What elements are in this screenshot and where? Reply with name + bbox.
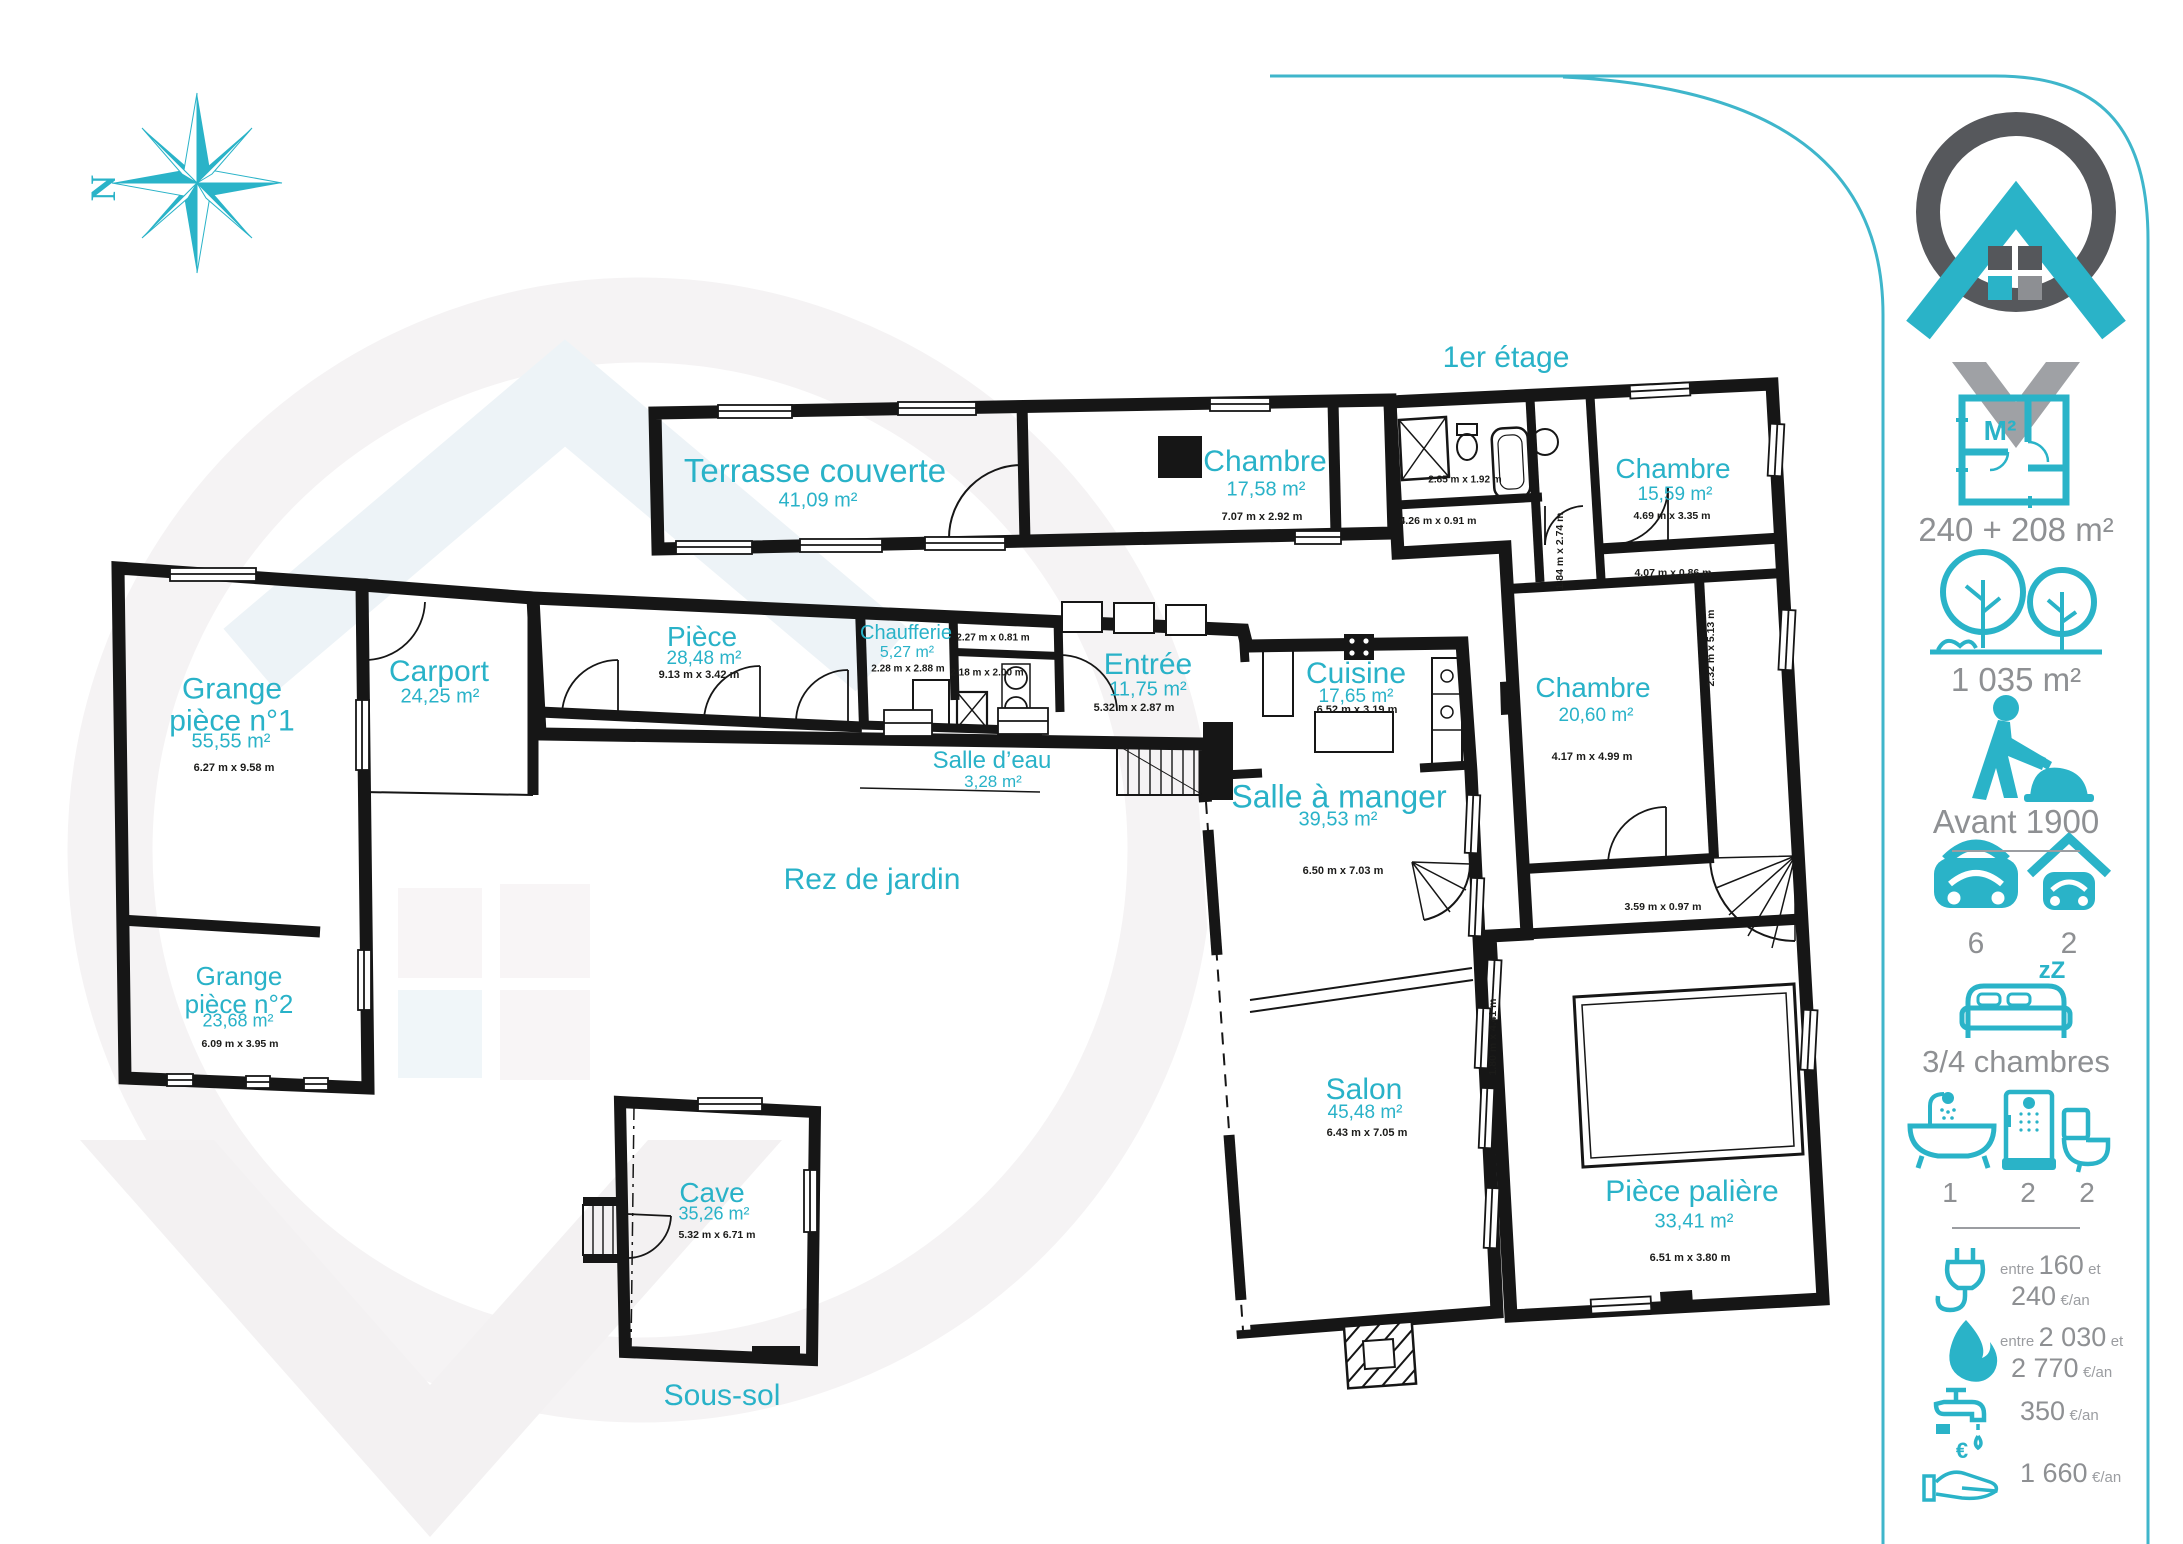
room-chambre3-area: 20,60 m² <box>1559 705 1634 727</box>
room-carport-area: 24,25 m² <box>401 686 480 709</box>
room-piece-dims: 9.13 m x 3.42 m <box>659 669 740 681</box>
room-carport-name: Carport <box>389 656 489 688</box>
room-piece-paliere-name: Pièce palière <box>1605 1176 1778 1208</box>
room-piece-area: 28,48 m² <box>667 648 742 670</box>
divider-2 <box>1952 1227 2080 1229</box>
surface-icon: M² <box>1956 398 2066 508</box>
measure-2: 1.84 m x 2.74 m <box>1554 512 1566 589</box>
water-cost: 350 €/an <box>2020 1396 2099 1427</box>
electricity-icon <box>1938 1248 1983 1310</box>
tax-cost: 1 660 €/an <box>2020 1458 2121 1489</box>
gas-cost: entre 2 030 et 2 770 €/an <box>2000 1322 2123 1384</box>
room-piece-paliere-area: 33,41 m² <box>1655 1211 1734 1234</box>
measure-7: 2.27 m x 0.81 m <box>956 633 1029 644</box>
room-salle-a-manger-area: 39,53 m² <box>1299 809 1378 832</box>
floor-plan-page: N <box>0 0 2183 1544</box>
measure-1: 4.26 m x 0.91 m <box>1399 515 1476 527</box>
room-entree-dims: 5.32 m x 2.87 m <box>1094 702 1175 714</box>
room-chambre3-name: Chambre <box>1535 673 1650 703</box>
room-salon-dims: 6.43 m x 7.05 m <box>1327 1127 1408 1139</box>
room-chaufferie-area: 5,27 m² <box>880 644 934 662</box>
measure-3: 4.07 m x 0.86 m <box>1634 567 1711 579</box>
room-chambre2-area: 15,59 m² <box>1638 484 1713 506</box>
svg-text:€: € <box>1956 1438 1968 1463</box>
first-floor-title: 1er étage <box>1443 341 1570 375</box>
room-salle-a-manger-dims: 6.50 m x 7.03 m <box>1303 865 1384 877</box>
land-icon <box>1930 552 2102 652</box>
land-value: 1 035 m² <box>1951 661 2081 699</box>
room-grange1-area: 55,55 m² <box>192 731 271 754</box>
tax-icon: € <box>1924 1438 1996 1500</box>
room-grange2-dims: 6.09 m x 3.95 m <box>201 1038 278 1050</box>
room-grange2-area: 23,68 m² <box>202 1011 273 1032</box>
bedrooms-icon: zZ <box>1962 957 2070 1038</box>
room-chaufferie-name: Chaufferie <box>860 623 952 645</box>
room-piece-paliere-dims: 6.51 m x 3.80 m <box>1650 1252 1731 1264</box>
room-salle-eau-area: 3,28 m² <box>964 772 1022 792</box>
room-chambre2-name: Chambre <box>1615 454 1730 484</box>
room-chambre1-area: 17,58 m² <box>1227 479 1306 502</box>
basement-title: Sous-sol <box>664 1379 781 1413</box>
room-cave-dims: 5.32 m x 6.71 m <box>678 1229 755 1241</box>
garage-icon <box>2030 838 2108 910</box>
room-grange1-name: Grange pièce n°1 <box>169 674 294 739</box>
plan-canvas: N <box>0 0 2183 1544</box>
measure-4: 2.32 m x 5.13 m <box>1705 609 1717 686</box>
room-salle-eau-name: Salle d’eau <box>933 748 1052 774</box>
shower-count: 2 <box>2020 1177 2036 1209</box>
wc-icon <box>2064 1110 2110 1172</box>
room-terrasse-name: Terrasse couverte <box>684 453 946 489</box>
room-chambre2-dims: 4.69 m x 3.35 m <box>1633 510 1710 522</box>
garage-count: 2 <box>2061 927 2078 961</box>
north-label: N <box>83 175 123 201</box>
surface-value: 240 + 208 m² <box>1918 511 2113 549</box>
room-chambre3-dims: 4.17 m x 4.99 m <box>1552 751 1633 763</box>
bedrooms-label: 3/4 chambres <box>1922 1044 2110 1080</box>
parking-icon <box>1934 845 2018 908</box>
bathtub-icon <box>1910 1092 1994 1168</box>
gas-icon <box>1949 1320 1997 1382</box>
room-chambre1-dims: 7.07 m x 2.92 m <box>1222 511 1303 523</box>
room-cave-area: 35,26 m² <box>678 1204 749 1225</box>
svg-text:zZ: zZ <box>2039 957 2066 984</box>
shower-icon <box>2002 1092 2056 1170</box>
room-grange1-dims: 6.27 m x 9.58 m <box>194 762 275 774</box>
construction-year-icon <box>1972 695 2094 802</box>
room-chambre1-name: Chambre <box>1203 446 1326 478</box>
year-value: Avant 1900 <box>1933 803 2099 841</box>
svg-text:M²: M² <box>1984 415 2017 446</box>
wc-count: 2 <box>2079 1177 2095 1209</box>
bath-count: 1 <box>1942 1177 1958 1209</box>
room-entree-area: 11,75 m² <box>1109 679 1186 702</box>
room-entree-name: Entrée <box>1104 649 1192 681</box>
parking-count: 6 <box>1968 927 1985 961</box>
divider-1 <box>1952 850 2080 852</box>
measure-8: 2.18 m x 2.00 m <box>950 668 1023 679</box>
measure-6: 1.80 m x 4.41 m <box>1487 998 1499 1075</box>
room-cuisine-dims: 6.52 m x 3.19 m <box>1317 704 1398 716</box>
room-terrasse-area: 41,09 m² <box>779 490 858 513</box>
room-chaufferie-dims: 2.28 m x 2.88 m <box>871 664 944 675</box>
room-salon-area: 45,48 m² <box>1328 1102 1403 1124</box>
compass-icon: N <box>83 93 282 273</box>
ground-floor-title: Rez de jardin <box>784 863 961 897</box>
electricity-cost: entre 160 et 240 €/an <box>2000 1250 2101 1312</box>
measure-0: 2.85 m x 1.92 m <box>1428 475 1501 486</box>
measure-5: 3.59 m x 0.97 m <box>1624 901 1701 913</box>
